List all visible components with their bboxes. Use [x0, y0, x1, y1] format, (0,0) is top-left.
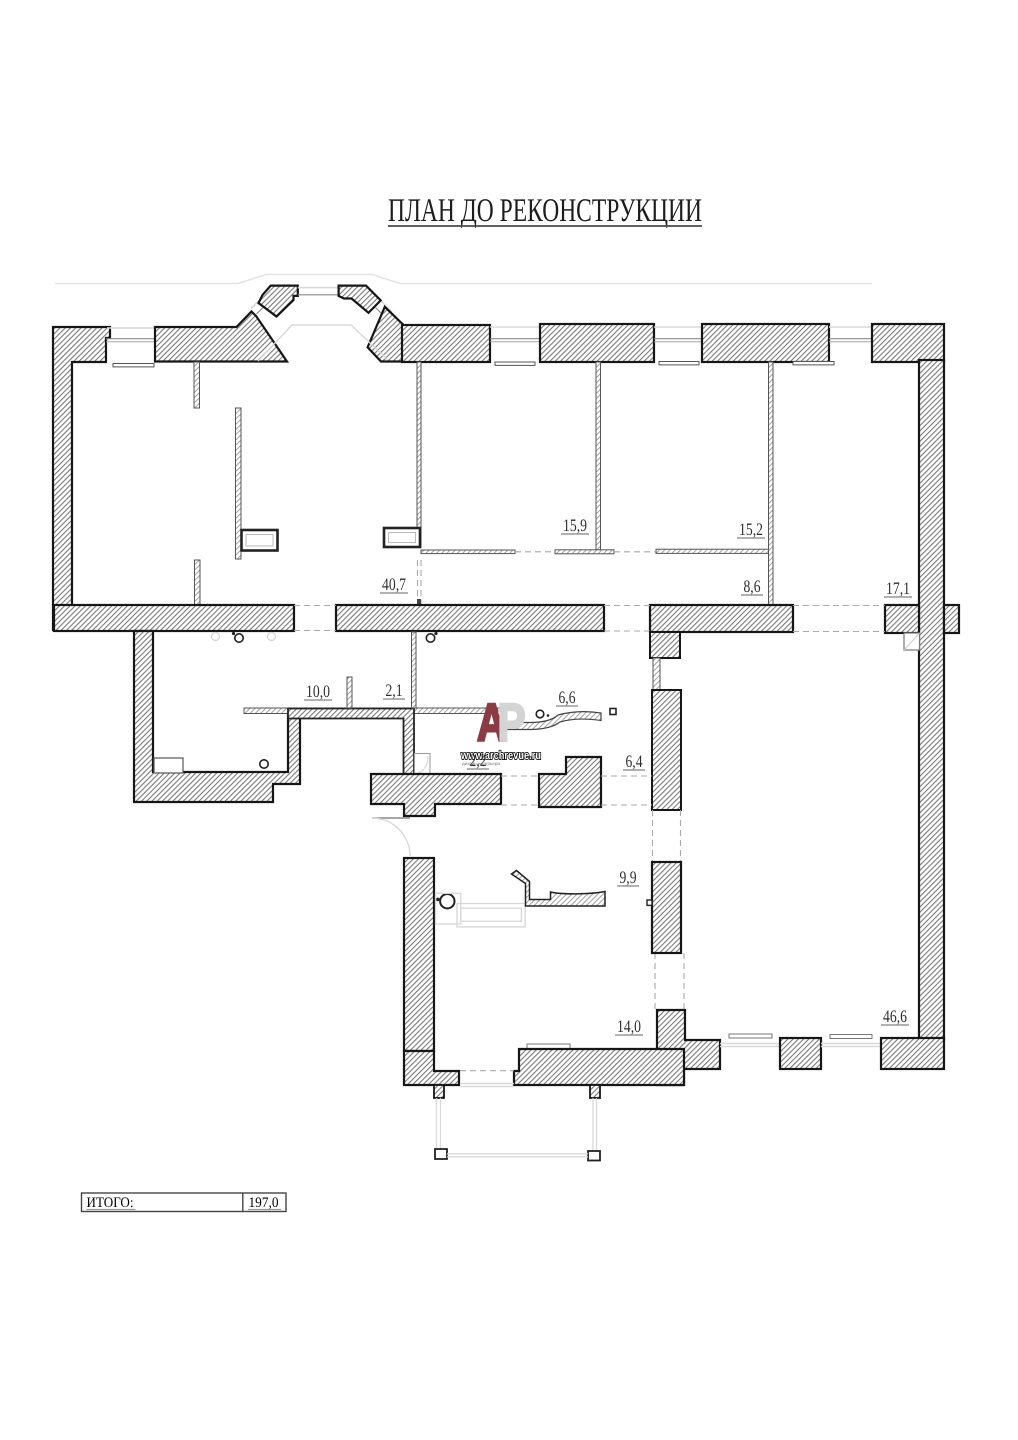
svg-text:6,4: 6,4: [626, 751, 643, 771]
svg-text:46,6: 46,6: [883, 1006, 907, 1026]
svg-text:ПЛАН ДО РЕКОНСТРУКЦИИ: ПЛАН ДО РЕКОНСТРУКЦИИ: [388, 193, 702, 229]
svg-text:40,7: 40,7: [382, 574, 406, 594]
svg-text:197,0: 197,0: [249, 1195, 279, 1211]
svg-text:9,9: 9,9: [620, 867, 637, 887]
svg-text:6,6: 6,6: [559, 687, 576, 707]
svg-text:17,1: 17,1: [886, 578, 910, 598]
svg-text:14,0: 14,0: [617, 1016, 641, 1036]
svg-text:15,9: 15,9: [563, 515, 587, 535]
svg-text:ИТОГО:: ИТОГО:: [87, 1195, 134, 1211]
svg-text:Р: Р: [498, 694, 526, 753]
svg-text:10,0: 10,0: [306, 681, 330, 701]
svg-text:8,6: 8,6: [744, 576, 761, 596]
svg-text:2,2: 2,2: [470, 750, 487, 770]
svg-text:2,1: 2,1: [386, 680, 403, 700]
svg-text:15,2: 15,2: [739, 519, 763, 539]
